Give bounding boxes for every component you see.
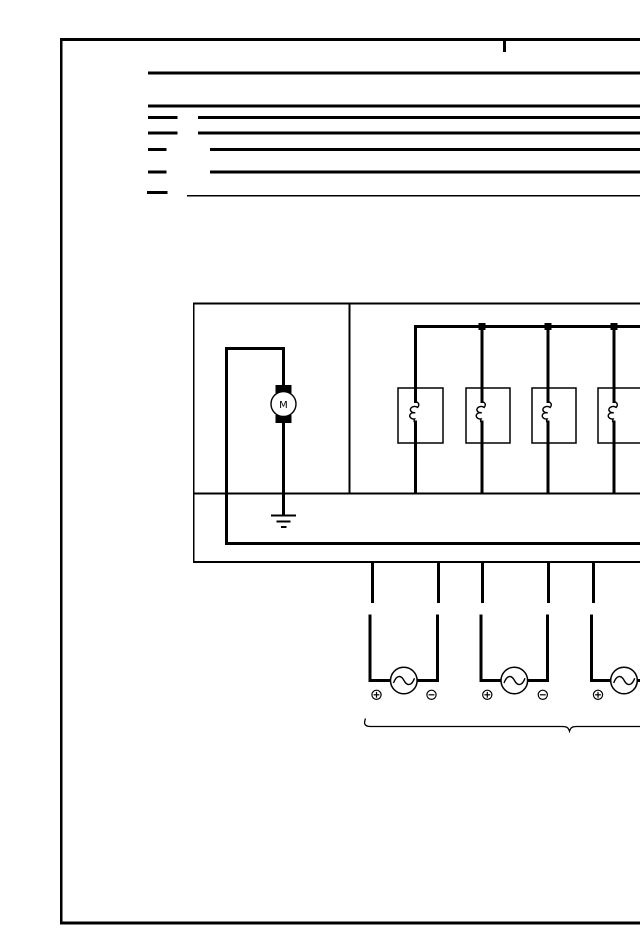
motor-supply-wire (227, 349, 640, 544)
wire-harness-lines (147, 73, 640, 196)
underbrace (365, 719, 640, 732)
motor-branch: M (227, 349, 640, 544)
relay-box-3 (532, 388, 576, 443)
minus-icon (538, 690, 547, 699)
coil-icon (542, 402, 551, 424)
relay-box-1 (398, 388, 443, 443)
ac3-left-lead (592, 615, 612, 681)
coil-feed-bus (416, 327, 640, 404)
relay-box-4 (598, 388, 640, 443)
minus-icon (427, 690, 436, 699)
ac1-right-lead (417, 615, 438, 681)
ac-source-1 (370, 615, 438, 700)
ac-sources (370, 615, 640, 700)
schematic-canvas: M (0, 0, 640, 950)
plus-icon (372, 690, 381, 699)
ac1-left-lead (370, 615, 391, 681)
relay-bank (398, 323, 640, 494)
ac2-right-lead (528, 615, 548, 681)
coil-icon (608, 402, 617, 424)
ac-source-2 (481, 615, 548, 700)
schematic-page: M (0, 0, 640, 950)
ac-source-3 (592, 615, 640, 700)
coil-icon (410, 402, 419, 424)
ac2-left-lead (481, 615, 501, 681)
plus-icon (483, 690, 492, 699)
motor-label: M (279, 400, 288, 411)
motor-icon: M (271, 385, 296, 423)
plus-icon (593, 690, 602, 699)
relay-box-2 (466, 388, 510, 443)
ground-icon (271, 516, 296, 528)
coil-icon (476, 402, 485, 424)
connector-stubs (373, 563, 594, 603)
